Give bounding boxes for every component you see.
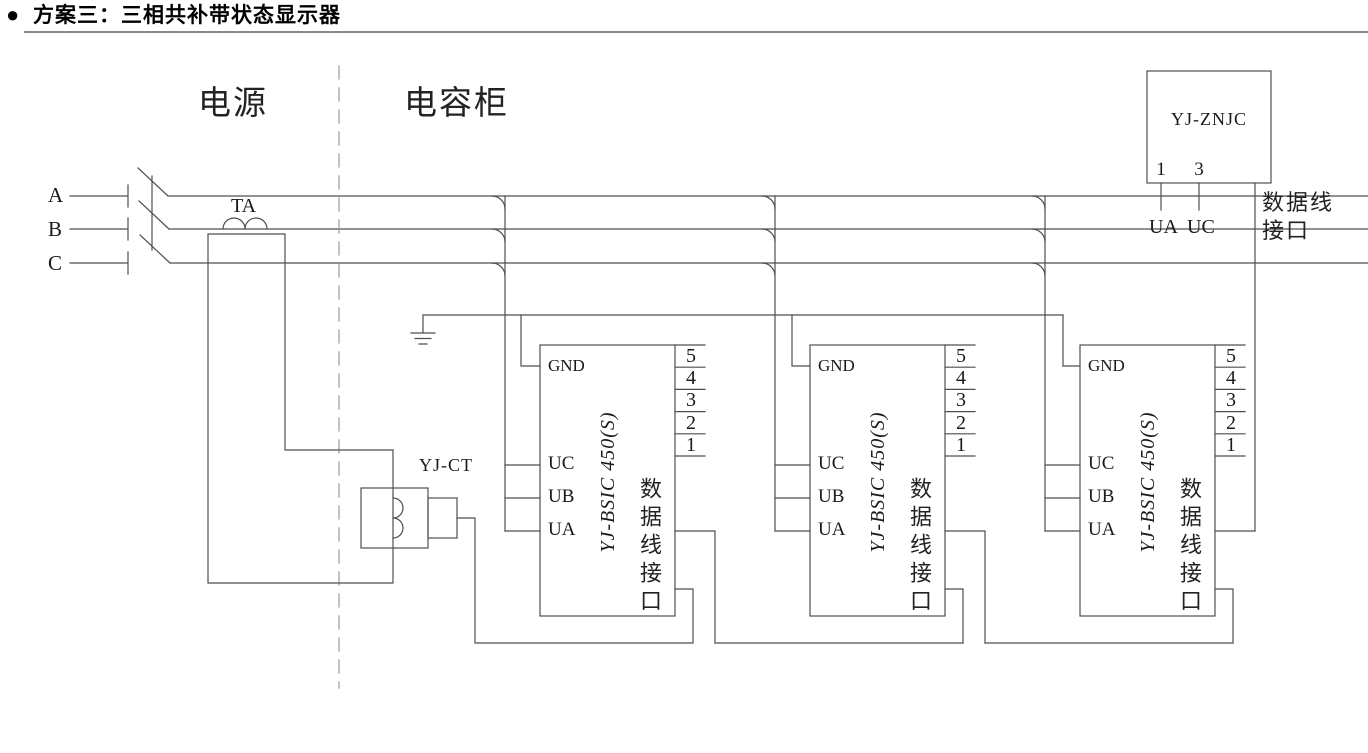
section-label-power: 电源 <box>198 86 268 122</box>
module-3-pin-5: 5 <box>1221 345 1241 367</box>
phase-a-label: A <box>48 184 63 206</box>
module-2-pin-4: 4 <box>951 367 971 389</box>
module-2-phase-taps <box>762 196 810 531</box>
ground-symbol <box>411 315 435 344</box>
module-2-pin-2: 2 <box>951 412 971 434</box>
phase-b-label: B <box>48 218 62 240</box>
ta-transformer <box>208 218 393 583</box>
znjc-pin-3: 3 <box>1191 160 1207 180</box>
module-2-pin-1: 1 <box>951 434 971 456</box>
module-3-phase-taps <box>1032 196 1080 531</box>
znjc-pin-1: 1 <box>1153 160 1169 180</box>
module-1-data-out <box>675 531 715 643</box>
module-3-pin-1: 1 <box>1221 434 1241 456</box>
schematic-page: ● 方案三：三相共补带状态显示器 电源 电容柜 A B C TA YJ-CT G… <box>0 0 1368 753</box>
module-3-pin-3: 3 <box>1221 389 1241 411</box>
module-1-model: YJ-BSIC 450(S) <box>595 402 621 562</box>
module-2-data-out <box>945 531 985 643</box>
module-2-pin-uc: UC <box>818 454 844 474</box>
module-1-pin-gnd: GND <box>548 357 585 375</box>
module-3-pin-2: 2 <box>1221 412 1241 434</box>
module-3-pin-gnd: GND <box>1088 357 1125 375</box>
module-1-pin-1: 1 <box>681 434 701 456</box>
ground-bus <box>411 315 1080 366</box>
module-3-pin-uc: UC <box>1088 454 1114 474</box>
module-2-pin-5: 5 <box>951 345 971 367</box>
module-3-data-in <box>1215 589 1233 643</box>
module-2-pin-ub: UB <box>818 487 844 507</box>
module-3-pin-4: 4 <box>1221 367 1241 389</box>
title-underline <box>24 31 1368 33</box>
page-title: 方案三：三相共补带状态显示器 <box>33 2 341 30</box>
znjc-model-label: YJ-ZNJC <box>1147 109 1271 129</box>
znjc-interface-label-line2: 接口 <box>1262 218 1310 244</box>
module-2-data-in <box>945 589 963 643</box>
yj-znjc-outline <box>1147 71 1271 531</box>
module-1-pin-3: 3 <box>681 389 701 411</box>
module-1-pin-2: 2 <box>681 412 701 434</box>
module-1-pin-uc: UC <box>548 454 574 474</box>
module-3-model: YJ-BSIC 450(S) <box>1135 402 1161 562</box>
znjc-pin-1-label-ua: UA <box>1149 216 1178 238</box>
znjc-pin-3-label-uc: UC <box>1187 216 1215 238</box>
ct-core-arcs <box>393 498 403 538</box>
ta-coil <box>223 218 267 229</box>
module-2-interface-label: 数据线接口 <box>907 477 931 617</box>
phase-c-label: C <box>48 252 62 274</box>
module-3-pin-ub: UB <box>1088 487 1114 507</box>
module-2-pin-3: 3 <box>951 389 971 411</box>
module-1-phase-taps <box>492 196 540 531</box>
module-1-pin-ua: UA <box>548 520 575 540</box>
ta-label: TA <box>231 195 256 217</box>
module-2-model: YJ-BSIC 450(S) <box>865 402 891 562</box>
title-bullet-icon: ● <box>6 2 19 28</box>
module-3-interface-label: 数据线接口 <box>1177 477 1201 617</box>
section-label-capacitor-cabinet: 电容柜 <box>404 86 509 122</box>
module-2-pin-ua: UA <box>818 520 845 540</box>
module-2-pin-gnd: GND <box>818 357 855 375</box>
yj-ct-label: YJ-CT <box>419 455 473 475</box>
module-1-pin-4: 4 <box>681 367 701 389</box>
znjc-interface-label-line1: 数据线 <box>1262 190 1334 216</box>
module-1-interface-label: 数据线接口 <box>637 477 661 617</box>
module-3-pin-ua: UA <box>1088 520 1115 540</box>
module-1-pin-5: 5 <box>681 345 701 367</box>
module-1-pin-ub: UB <box>548 487 574 507</box>
